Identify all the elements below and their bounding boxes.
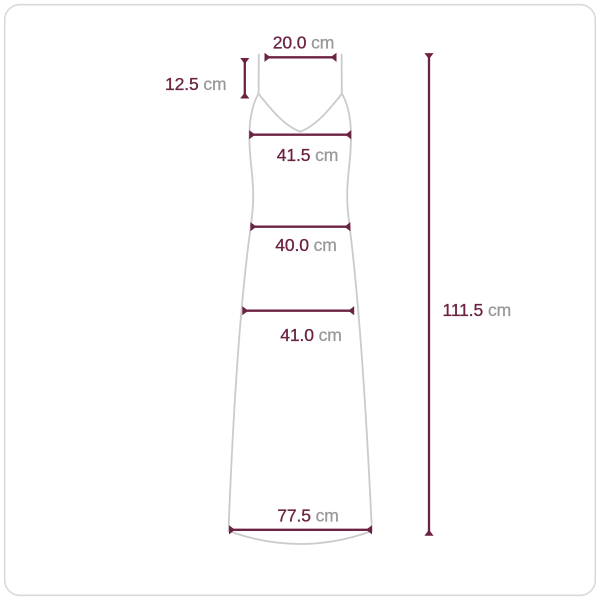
svg-text:111.5 cm: 111.5 cm — [443, 300, 512, 320]
svg-text:40.0 cm: 40.0 cm — [275, 235, 337, 255]
svg-text:41.0 cm: 41.0 cm — [280, 325, 342, 345]
svg-text:41.5 cm: 41.5 cm — [277, 145, 339, 165]
svg-text:77.5 cm: 77.5 cm — [277, 505, 339, 525]
svg-text:20.0 cm: 20.0 cm — [273, 33, 335, 53]
svg-text:12.5 cm: 12.5 cm — [165, 74, 227, 94]
